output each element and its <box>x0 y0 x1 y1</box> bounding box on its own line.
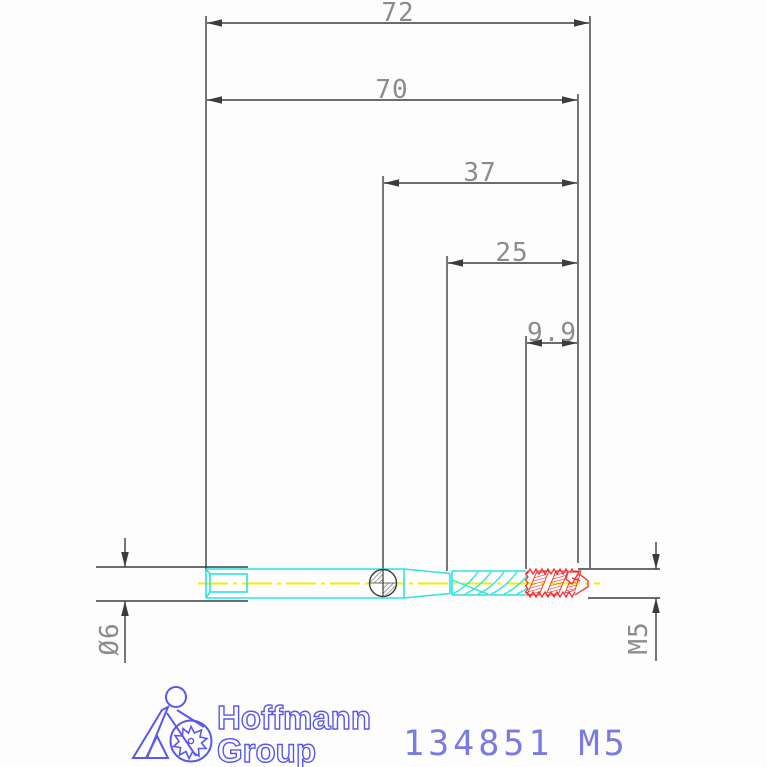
dim-label-72: 72 <box>381 0 414 26</box>
logo-figure-icon <box>133 687 212 762</box>
logo-wordmark: Hoffmann Group <box>217 699 371 767</box>
part-number: 134851 M5 <box>403 727 629 762</box>
dim-label-dia6: Ø6 <box>97 622 123 655</box>
balance-point-symbol <box>370 570 397 597</box>
dim-label-25: 25 <box>495 240 528 266</box>
dim-label-9-9: 9.9 <box>527 320 577 346</box>
logo-text-group: Group <box>217 732 316 767</box>
logo-text-hoffmann: Hoffmann <box>217 699 371 736</box>
cad-drawing-page: Hoffmann Group 72 70 37 25 9.9 Ø6 M5 134… <box>0 0 767 767</box>
dim-label-37: 37 <box>463 160 496 186</box>
dim-label-m5: M5 <box>626 621 652 654</box>
hoffmann-group-logo: Hoffmann Group <box>133 687 371 767</box>
dim-label-70: 70 <box>375 77 408 103</box>
